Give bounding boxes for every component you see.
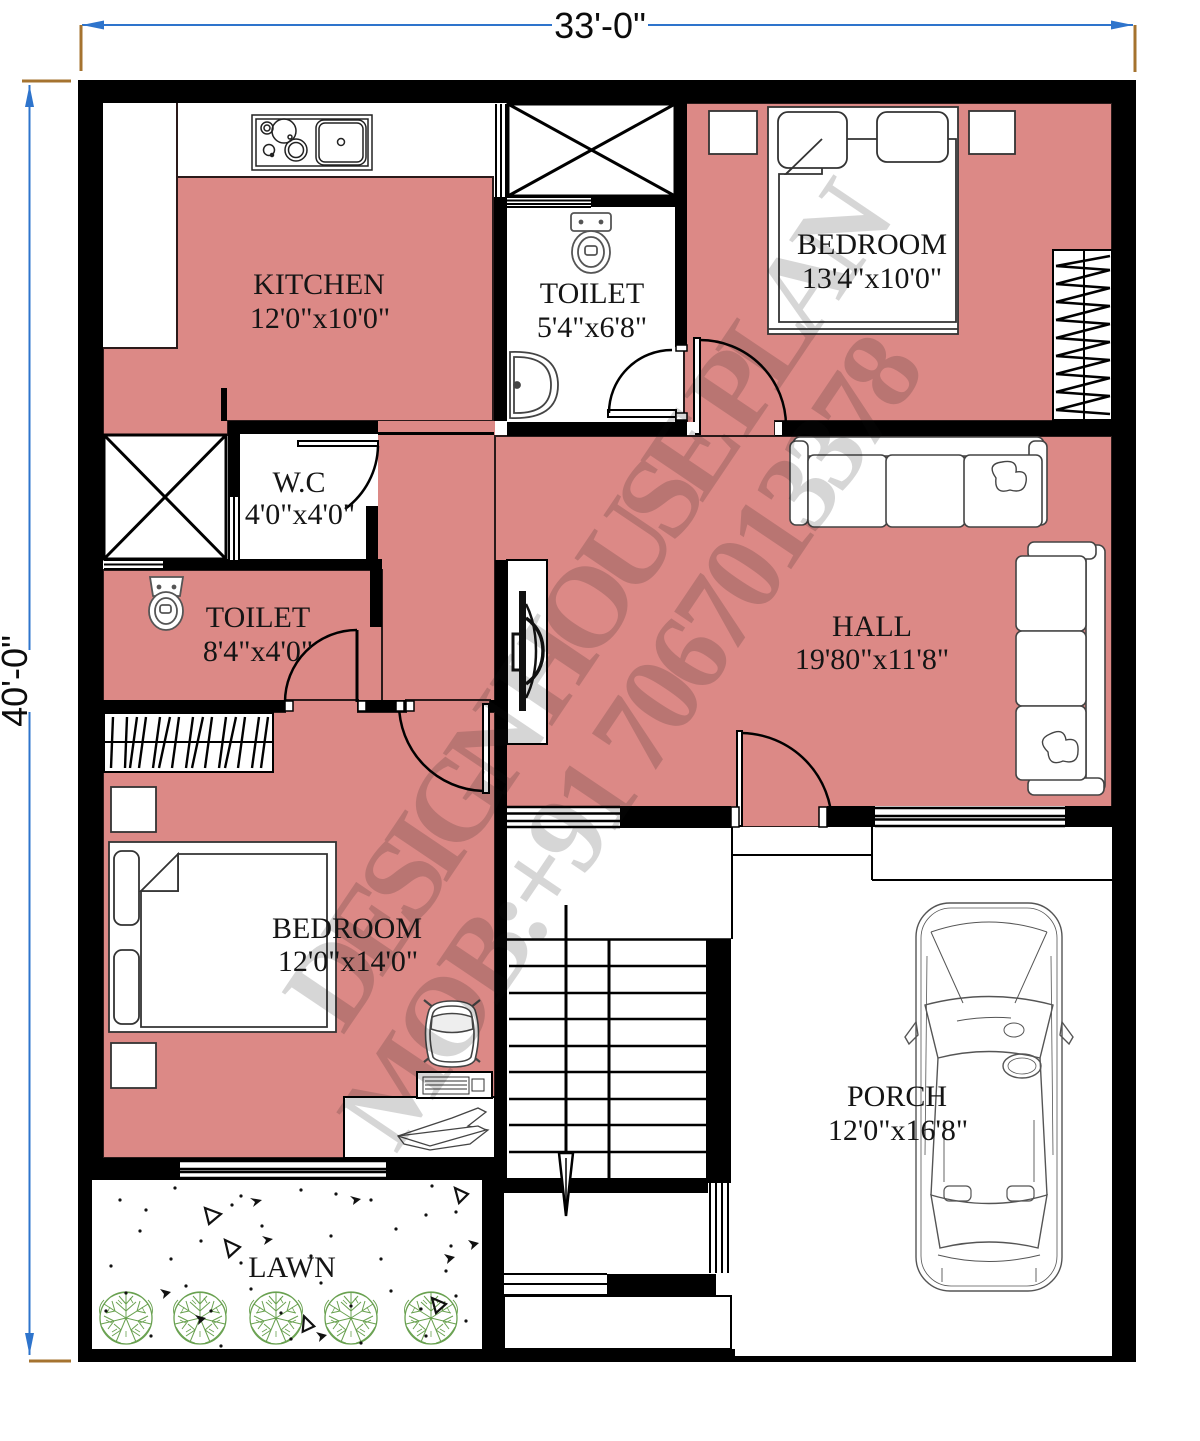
svg-text:W.C: W.C bbox=[272, 466, 325, 499]
svg-text:TOILET: TOILET bbox=[206, 601, 310, 634]
svg-text:40'-0": 40'-0" bbox=[0, 635, 35, 727]
svg-text:LAWN: LAWN bbox=[248, 1251, 336, 1284]
svg-text:8'4"x4'0": 8'4"x4'0" bbox=[203, 635, 313, 668]
svg-text:12'0"x10'0": 12'0"x10'0" bbox=[250, 302, 390, 335]
svg-text:TOILET: TOILET bbox=[540, 277, 644, 310]
svg-text:5'4"x6'8": 5'4"x6'8" bbox=[537, 311, 647, 344]
svg-text:33'-0": 33'-0" bbox=[554, 5, 646, 46]
svg-text:19'80"x11'8": 19'80"x11'8" bbox=[795, 643, 949, 676]
svg-text:KITCHEN: KITCHEN bbox=[253, 268, 385, 301]
svg-text:PORCH: PORCH bbox=[847, 1080, 947, 1113]
svg-text:HALL: HALL bbox=[832, 610, 912, 643]
svg-text:12'0"x16'8": 12'0"x16'8" bbox=[828, 1114, 968, 1147]
svg-text:4'0"x4'0": 4'0"x4'0" bbox=[245, 498, 355, 531]
